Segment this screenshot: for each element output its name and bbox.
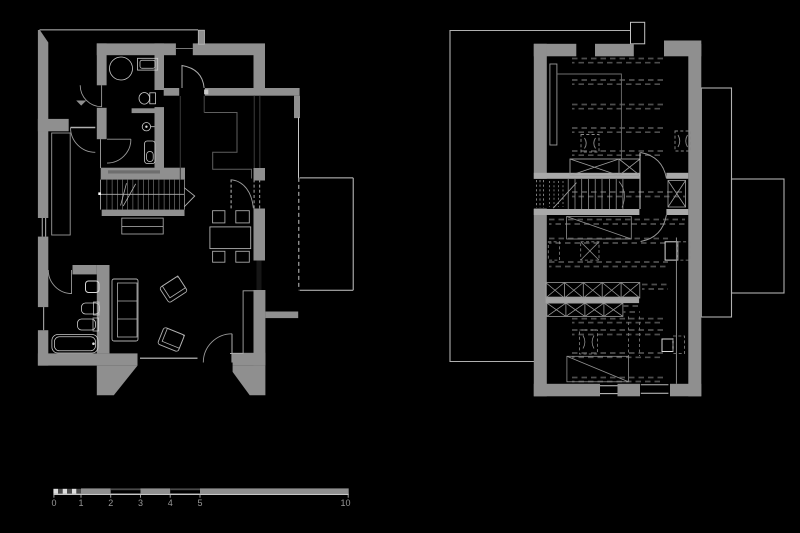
- svg-text:2: 2: [108, 498, 113, 508]
- svg-text:5: 5: [197, 498, 202, 508]
- svg-text:4: 4: [168, 498, 173, 508]
- svg-text:3: 3: [138, 498, 143, 508]
- svg-text:10: 10: [340, 498, 350, 508]
- svg-text:0: 0: [51, 498, 56, 508]
- svg-text:1: 1: [78, 498, 83, 508]
